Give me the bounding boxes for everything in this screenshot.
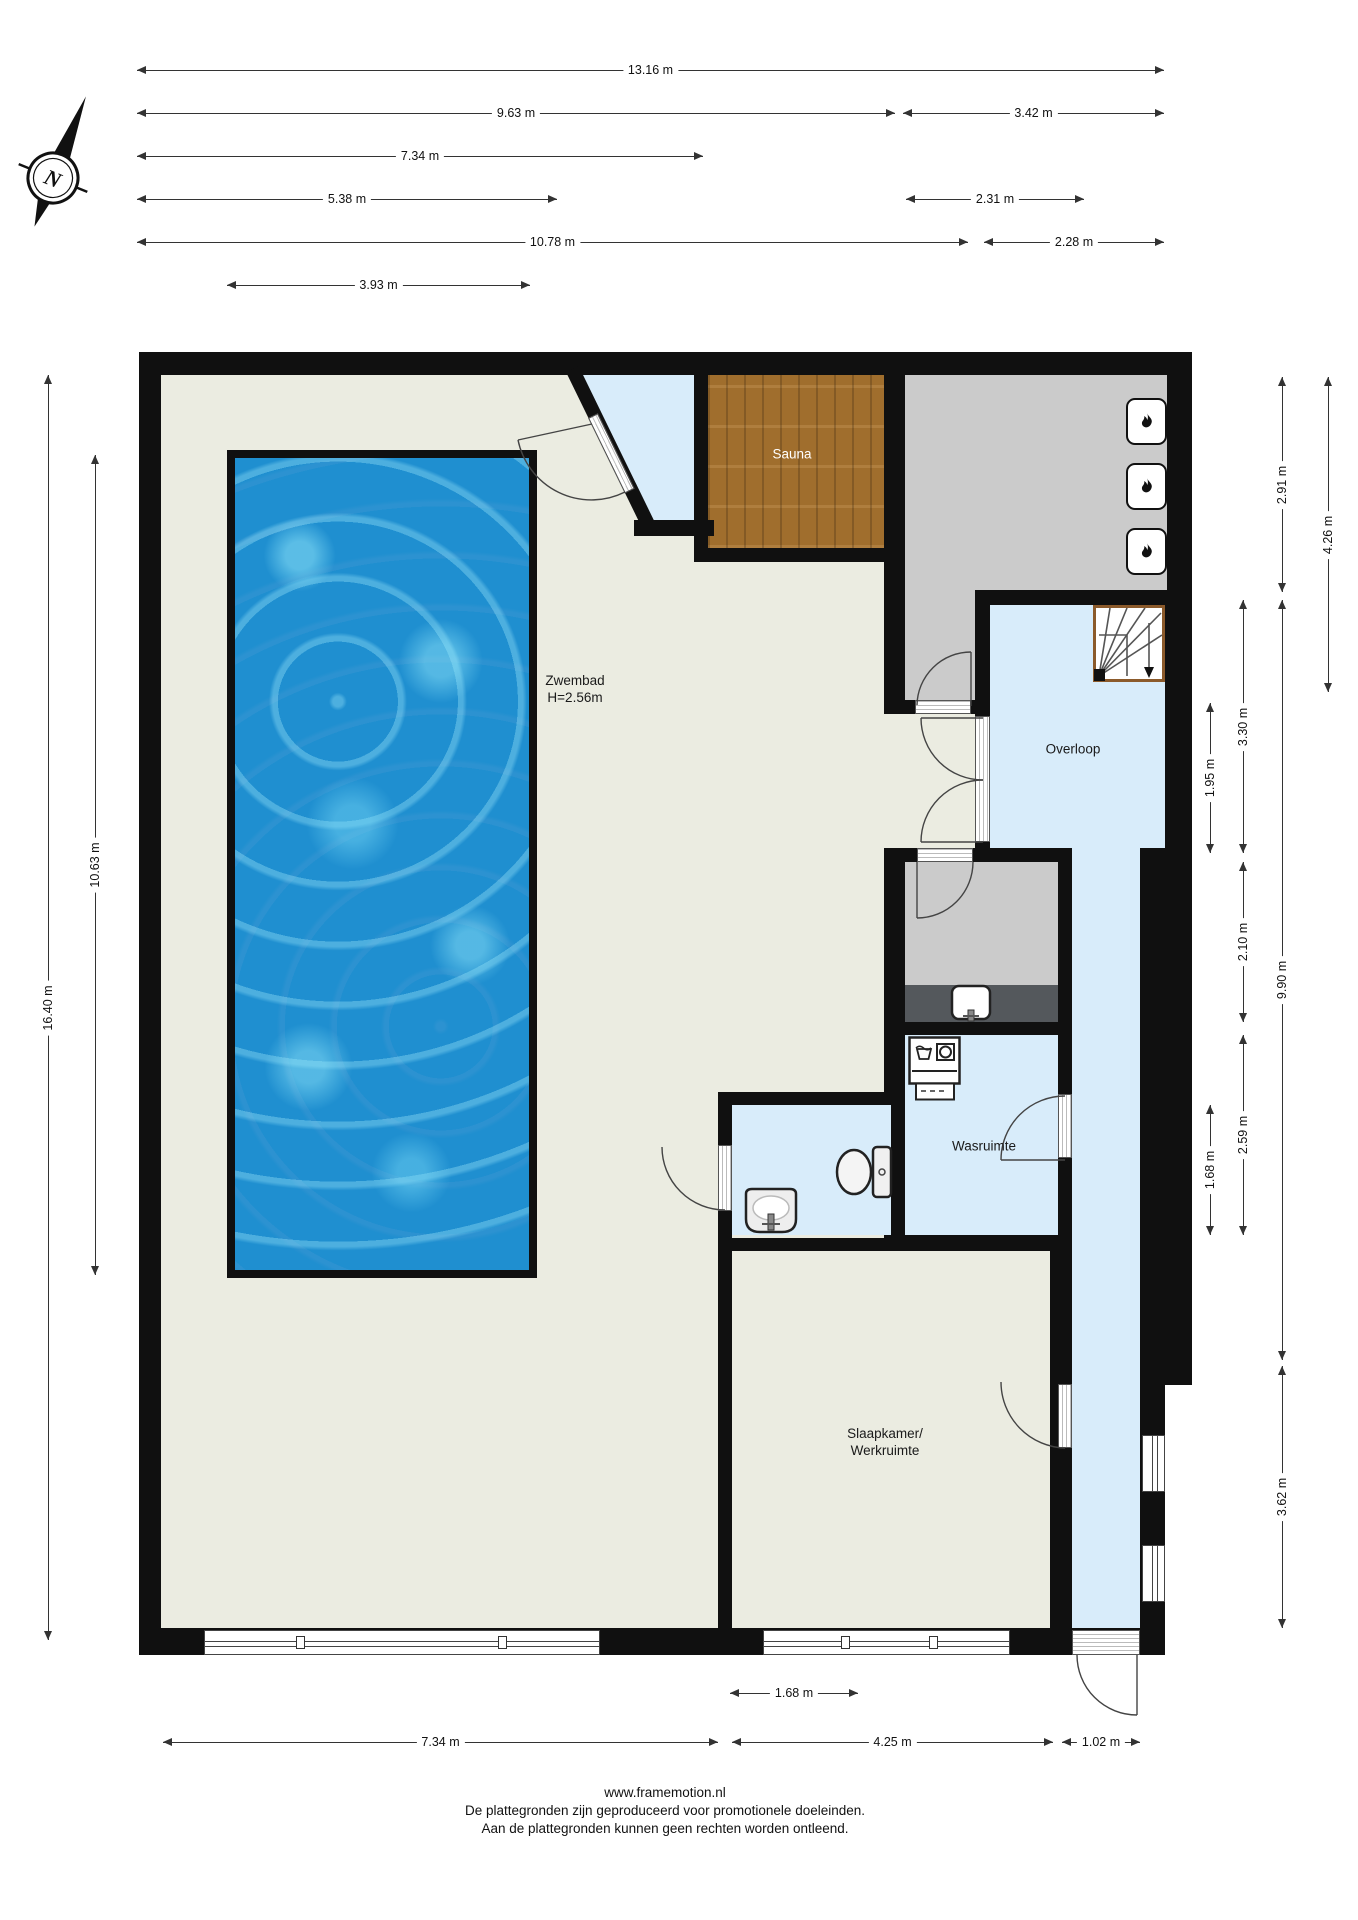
dimension-label: 1.02 m xyxy=(1077,1735,1125,1749)
dimension-label: 4.25 m xyxy=(868,1735,916,1749)
dimension-label: 1.68 m xyxy=(770,1686,818,1700)
dimension-label: 3.42 m xyxy=(1009,106,1057,120)
dimension-label: 16.40 m xyxy=(40,980,56,1035)
door-toilet xyxy=(718,1145,732,1211)
dimension-3.30m: 3.30 m xyxy=(1234,600,1252,853)
room-label-slaapkamer: Slaapkamer/ Werkruimte xyxy=(847,1426,923,1460)
wall-segment xyxy=(975,590,1167,605)
dimension-4.26m: 4.26 m xyxy=(1319,377,1337,692)
window xyxy=(1142,1435,1165,1492)
dimension-5.38m: 5.38 m xyxy=(137,190,557,208)
double-door-overloop xyxy=(975,716,990,842)
pool-water xyxy=(235,458,529,1270)
dimension-label: 10.78 m xyxy=(525,235,580,249)
wall-segment xyxy=(718,1238,1072,1251)
window-mullion xyxy=(296,1636,305,1649)
sink-icon xyxy=(738,1186,804,1236)
zwembad-height: H=2.56m xyxy=(545,690,604,707)
slaapkamer-line2: Werkruimte xyxy=(847,1443,923,1460)
door-technical xyxy=(915,700,971,714)
window-mullion xyxy=(929,1636,938,1649)
dimension-label: 7.34 m xyxy=(416,1735,464,1749)
dimension-2.91m: 2.91 m xyxy=(1273,377,1291,592)
room-label-zwembad: Zwembad H=2.56m xyxy=(545,673,604,707)
floor-corridor xyxy=(1072,848,1140,1628)
window xyxy=(204,1630,600,1655)
dimension-3.62m: 3.62 m xyxy=(1273,1366,1291,1628)
toilet-icon xyxy=(833,1144,895,1200)
window-mullion xyxy=(498,1636,507,1649)
dimension-10.63m: 10.63 m xyxy=(86,455,104,1275)
dimension-label: 1.68 m xyxy=(1202,1146,1218,1194)
dimension-1.95m: 1.95 m xyxy=(1201,703,1219,853)
dimension-9.90m: 9.90 m xyxy=(1273,600,1291,1360)
wall-segment xyxy=(884,375,905,714)
floor-technical-leg xyxy=(905,597,975,700)
dimension-2.31m: 2.31 m xyxy=(906,190,1084,208)
dimension-3.93m: 3.93 m xyxy=(227,276,530,294)
wall-segment xyxy=(718,1092,905,1105)
dimension-label: 2.59 m xyxy=(1235,1111,1251,1159)
dimension-label: 7.34 m xyxy=(396,149,444,163)
footer: www.framemotion.nl De plattegronden zijn… xyxy=(140,1784,1190,1839)
dimension-2.10m: 2.10 m xyxy=(1234,862,1252,1022)
window xyxy=(1142,1545,1165,1602)
dimension-3.42m: 3.42 m xyxy=(903,104,1164,122)
dimension-label: 1.95 m xyxy=(1202,754,1218,802)
dimension-label: 9.90 m xyxy=(1274,956,1290,1004)
compass-icon: N xyxy=(8,88,98,238)
dimension-13.16m: 13.16 m xyxy=(137,61,1164,79)
door-wasruimte xyxy=(1058,1094,1072,1158)
door-exit xyxy=(1072,1630,1140,1655)
dimension-label: 9.63 m xyxy=(492,106,540,120)
dimension-1.68m: 1.68 m xyxy=(730,1684,858,1702)
shell-notch xyxy=(1165,1385,1192,1660)
dimension-1.02m: 1.02 m xyxy=(1062,1733,1140,1751)
sink-icon xyxy=(948,982,994,1024)
footer-disclaimer-2: Aan de plattegronden kunnen geen rechten… xyxy=(140,1820,1190,1838)
flame-icon xyxy=(1137,476,1157,498)
dimension-2.59m: 2.59 m xyxy=(1234,1035,1252,1235)
dimension-label: 10.63 m xyxy=(87,837,103,892)
dimension-label: 3.62 m xyxy=(1274,1473,1290,1521)
flame-icon xyxy=(1137,411,1157,433)
dimension-label: 2.91 m xyxy=(1274,460,1290,508)
dimension-label: 2.28 m xyxy=(1050,235,1098,249)
heater-unit xyxy=(1126,398,1167,445)
floor-zwembad-mid xyxy=(884,714,975,848)
dimension-label: 3.93 m xyxy=(354,278,402,292)
zwembad-name: Zwembad xyxy=(545,673,604,690)
dimension-16.40m: 16.40 m xyxy=(39,375,57,1640)
dimension-10.78m: 10.78 m xyxy=(137,233,968,251)
dimension-7.34m: 7.34 m xyxy=(163,1733,718,1751)
heater-unit xyxy=(1126,528,1167,575)
washing-machine-icon xyxy=(908,1036,962,1106)
slaapkamer-line1: Slaapkamer/ xyxy=(847,1426,923,1443)
door-slaapkamer xyxy=(1058,1384,1072,1448)
dimension-label: 4.26 m xyxy=(1320,510,1336,558)
window xyxy=(763,1630,1010,1655)
dimension-label: 3.30 m xyxy=(1235,702,1251,750)
room-label-sauna: Sauna xyxy=(772,447,811,464)
dimension-1.68m: 1.68 m xyxy=(1201,1105,1219,1235)
dimension-label: 13.16 m xyxy=(623,63,678,77)
footer-disclaimer-1: De plattegronden zijn geproduceerd voor … xyxy=(140,1802,1190,1820)
floorplan-canvas: N xyxy=(0,0,1358,1920)
room-label-overloop: Overloop xyxy=(1046,742,1101,759)
footer-url: www.framemotion.nl xyxy=(140,1784,1190,1802)
window-mullion xyxy=(841,1636,850,1649)
room-label-wasruimte: Wasruimte xyxy=(952,1139,1016,1156)
heater-unit xyxy=(1126,463,1167,510)
dimension-7.34m: 7.34 m xyxy=(137,147,703,165)
dimension-4.25m: 4.25 m xyxy=(732,1733,1053,1751)
dimension-2.28m: 2.28 m xyxy=(984,233,1164,251)
stairs-icon xyxy=(1093,605,1165,682)
dimension-9.63m: 9.63 m xyxy=(137,104,895,122)
dimension-label: 2.10 m xyxy=(1235,918,1251,966)
wall-segment xyxy=(694,548,891,562)
wall-segment xyxy=(975,605,990,716)
door-sink-room xyxy=(917,848,973,862)
dimension-label: 2.31 m xyxy=(971,192,1019,206)
dimension-label: 5.38 m xyxy=(323,192,371,206)
flame-icon xyxy=(1137,541,1157,563)
